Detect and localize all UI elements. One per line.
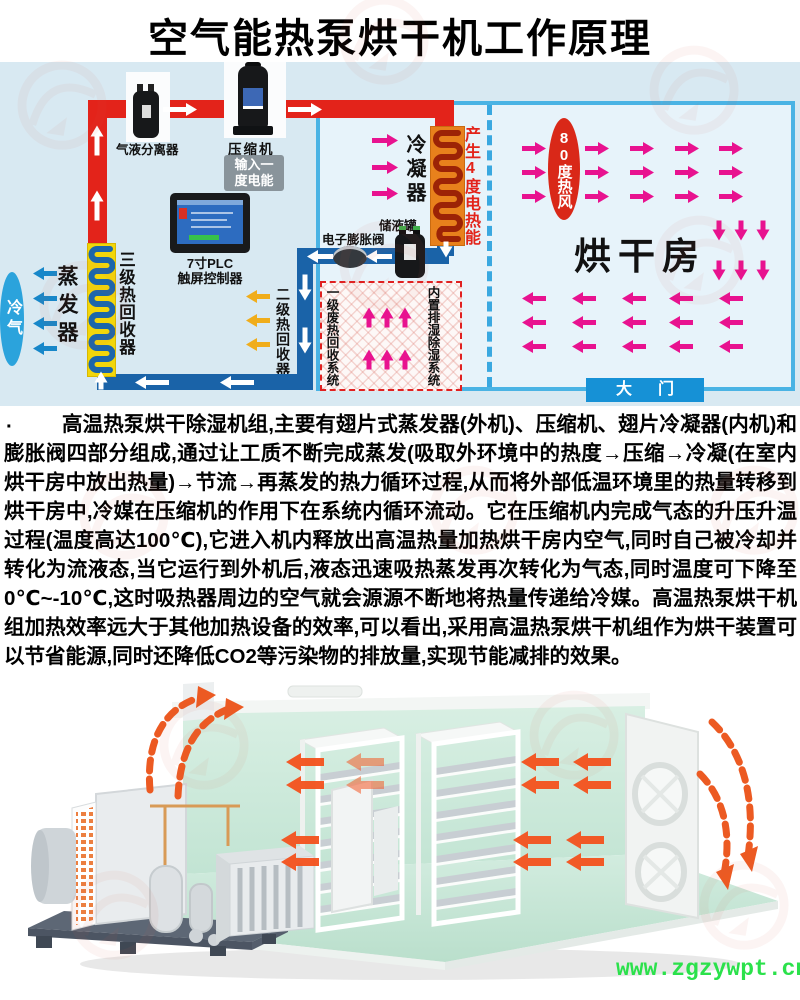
plc-screen-header <box>177 200 243 205</box>
heat-recovery-3-box <box>87 243 116 377</box>
plc-screen <box>177 200 243 244</box>
plc-screen-line <box>191 219 227 221</box>
cold-air-arrow <box>33 292 57 305</box>
input-power-line2: 度电能 <box>224 173 284 189</box>
compressor <box>238 62 268 137</box>
fan-wall <box>626 714 698 918</box>
compressor-sticker <box>243 88 263 109</box>
produce-power-label: 产生4度电热能 <box>462 126 478 246</box>
plc-controller <box>170 193 250 253</box>
plc-label: 7寸PLC 触屏控制器 <box>158 256 262 286</box>
separator-label: 气液分离器 <box>116 139 179 158</box>
separator-sticker <box>142 105 151 118</box>
website-url: www.zgzywpt.cn <box>616 956 796 982</box>
bullet-mark: · <box>6 412 13 441</box>
pipe-hot-vertical <box>88 100 107 245</box>
drying-room-label: 烘干房 <box>574 226 706 280</box>
plc-screen-button <box>189 235 219 240</box>
heat-recovery-3-coil <box>88 244 115 376</box>
tank-body <box>395 234 425 278</box>
pipe-cold-vertical <box>297 248 313 390</box>
plc-screen-line <box>191 212 233 214</box>
recovery2-arrow <box>246 314 270 327</box>
room-frame-right <box>791 101 795 391</box>
compressor-body <box>238 66 268 128</box>
plc-label-line1: 7寸PLC <box>158 256 262 271</box>
evaporator-label: 蒸发器 <box>56 265 77 349</box>
gate-label: 大门 <box>586 378 704 402</box>
recovery2-arrow <box>246 290 270 303</box>
description-block: · 高温热泵烘干除湿机组,主要有翅片式蒸发器(外机)、压缩机、翅片冷凝器(内机)… <box>4 410 797 671</box>
hot-wind-label: 80度热风 <box>557 130 572 209</box>
indoor-unit-panel <box>332 780 372 912</box>
condenser-label: 冷凝器 <box>404 134 424 206</box>
infographic-page: 空气能热泵烘干机工作原理 80度热风 烘干房 大门 一级废热回收系统 内置排湿除… <box>0 0 800 1000</box>
description-text: 高温热泵烘干除湿机组,主要有翅片式蒸发器(外机)、压缩机、翅片冷凝器(内机)和膨… <box>4 410 797 671</box>
pipe-hot-corner <box>435 100 454 128</box>
dehumid-system-label: 内置排湿除湿系统 <box>426 286 439 386</box>
plc-screen-line <box>191 226 231 228</box>
tank-sticker <box>404 244 416 260</box>
dryer-room-illustration <box>0 678 800 990</box>
input-power-tag: 输入一 度电能 <box>224 155 284 191</box>
condenser-box <box>430 126 465 246</box>
evaporator-coil-panel <box>76 807 93 925</box>
plc-label-line2: 触屏控制器 <box>158 271 262 286</box>
schematic-diagram: 80度热风 烘干房 大门 一级废热回收系统 内置排湿除湿系统 二级热回收器 三级… <box>0 62 800 406</box>
gas-liquid-separator <box>133 84 159 138</box>
cold-air-arrow <box>33 267 57 280</box>
liquid-tank <box>395 226 425 278</box>
pipe-cold-horizontal <box>299 248 449 264</box>
page-title: 空气能热泵烘干机工作原理 <box>0 6 800 64</box>
cold-air-badge: 冷气 <box>0 272 24 366</box>
heat-recovery-2-label: 二级热回收器 <box>276 287 290 377</box>
expansion-valve <box>333 246 367 268</box>
waste-heat-recovery-box <box>320 281 462 391</box>
input-power-line1: 输入一 <box>224 157 284 173</box>
roof-handle <box>288 686 362 697</box>
plc-screen-chip <box>179 208 187 219</box>
waste-heat-recovery-label: 一级废热回收系统 <box>325 286 338 386</box>
cold-air-label: 冷气 <box>0 299 24 339</box>
back-wall <box>183 706 645 874</box>
heat-recovery-3-label: 三级热回收器 <box>117 251 134 356</box>
cold-air-arrow <box>33 342 57 355</box>
compressor-base <box>233 126 273 135</box>
recovery2-arrow <box>246 338 270 351</box>
cold-air-arrow <box>33 317 57 330</box>
condenser-coil <box>431 127 464 245</box>
pipe-cold-bottom <box>97 374 313 390</box>
expansion-valve-label: 电子膨胀阀 <box>322 229 385 248</box>
separator-body <box>133 91 159 138</box>
room-partition-dashed-line <box>487 105 492 387</box>
hot-wind-badge: 80度热风 <box>548 118 580 220</box>
